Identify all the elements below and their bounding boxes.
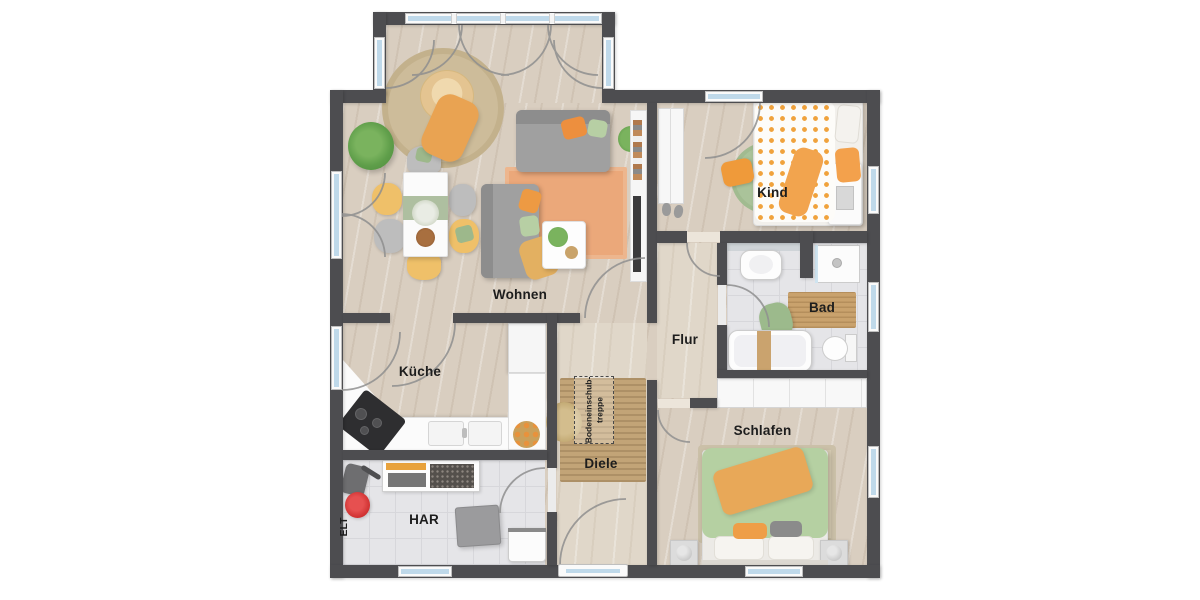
potted-plant [348,122,394,170]
shower-drain [832,258,842,268]
kids-laptop [836,186,854,210]
sink-basin [749,255,773,274]
room-label-kind: Kind [740,185,805,200]
window-kueche-glass [334,329,339,387]
kids-wardrobe-divider [670,108,671,204]
room-label-har: HAR [390,512,458,527]
window-schlafen-right-glass [871,449,876,495]
dining-chair-left-1 [372,183,402,215]
coffee-table-plant [548,227,568,247]
bed-cushion-gray [770,521,802,537]
tv-screen [633,196,641,272]
wall-media [647,103,657,323]
window-kind-right-glass [871,169,876,211]
shower-glass [815,245,818,283]
kitchen-faucet [462,428,467,438]
sofa-chaise-back [481,184,493,278]
built-in-closet [717,378,867,408]
wall-shower-stub [800,231,813,278]
kids-slippers [662,203,671,216]
terrace-door-mullion-3 [549,13,555,24]
door-sill-bad [718,285,726,325]
cooktop-burner-3 [360,426,369,435]
wall-right [867,90,880,578]
room-label-flur: Flur [655,332,715,347]
cooktop-burner-2 [372,418,382,428]
shelf-books [633,120,642,180]
wall-wohnen-south-a [343,313,390,323]
attic-hatch-label: Bodeneinschub- treppe [583,377,604,444]
kitchen-sink-1 [428,421,464,446]
bed-pillow-left [714,536,764,560]
wall-bad-west-a [717,243,727,285]
bathtub-tray [757,331,771,371]
wall-kueche-east-b [547,512,557,565]
room-label-schlafen: Schlafen [710,423,815,438]
coffee-table-bowl [565,246,578,259]
dining-chair-right-1 [449,184,476,216]
room-label-elt: ELT [338,507,352,547]
terrace-door-mullion-2 [500,13,506,24]
kitchen-fridge [508,323,546,373]
lamp-right [826,545,842,561]
fruit-bowl [416,228,435,247]
room-label-bad: Bad [788,300,856,315]
bed-pillow-right [768,536,814,560]
wall-kueche-east-a [547,313,557,468]
floor-flur [657,243,717,398]
door-sill-kind [687,232,720,242]
room-label-kueche: Küche [380,364,460,379]
wall-kind-south-b [720,231,867,243]
entrance-door-glass [566,569,620,573]
shelf-tools [388,473,426,487]
flower-bouquet [412,200,439,226]
sofa-pillow-green [587,118,609,138]
window-bad-glass [871,285,876,329]
kids-wardrobe [658,108,684,204]
wall-wohnen-south-b [453,313,580,323]
window-bay-right-glass [606,40,611,86]
wall-diele-schlafen [647,380,657,565]
door-sill-har [548,468,556,512]
toilet-bowl [822,336,848,361]
fruit-bowl-kitchen [513,421,540,448]
storage-box [455,505,502,548]
kids-pillow-white [834,104,862,144]
chaise-pillow-green [519,215,541,237]
window-kind-top-glass [708,94,760,99]
floor-plan: Bodeneinschub- treppe [0,0,1200,600]
shelf-bin-orange [386,463,426,470]
kitchen-sink-2 [468,421,502,446]
door-sill-schlafen [658,399,690,408]
lamp-left [676,545,692,561]
window-schlafen-bottom-glass [748,569,800,574]
wall-bad-west-b [717,325,727,372]
heat-pump-unit [508,528,546,562]
kids-pillow-orange [835,147,862,183]
shelf-basket [430,464,474,488]
window-bay-left-glass [377,40,382,86]
room-label-diele: Diele [565,456,637,471]
attic-hatch: Bodeneinschub- treppe [574,376,614,444]
dining-chair-bottom [407,254,441,280]
terrace-door-mullion-1 [451,13,457,24]
window-har-glass [401,569,449,574]
wall-har-north [343,450,547,460]
bed-cushion-orange [733,523,767,539]
wall-schlafen-north [690,398,717,408]
wall-kind-south-a [657,231,687,243]
french-door-glass [334,174,339,256]
wall-bad-south [717,370,867,378]
heat-pump-top [508,528,546,532]
dining-chair-left-2 [374,219,406,253]
room-label-wohnen: Wohnen [470,287,570,302]
